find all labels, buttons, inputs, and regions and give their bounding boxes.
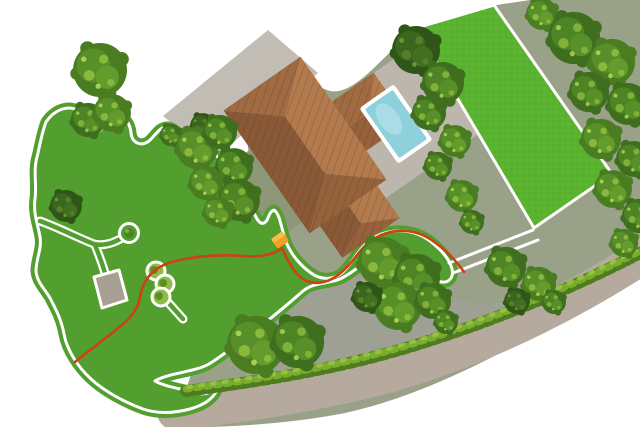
garden-plan-canvas: [0, 0, 640, 427]
garden-plan-illustration: [0, 0, 640, 427]
small-bush: [124, 228, 134, 238]
